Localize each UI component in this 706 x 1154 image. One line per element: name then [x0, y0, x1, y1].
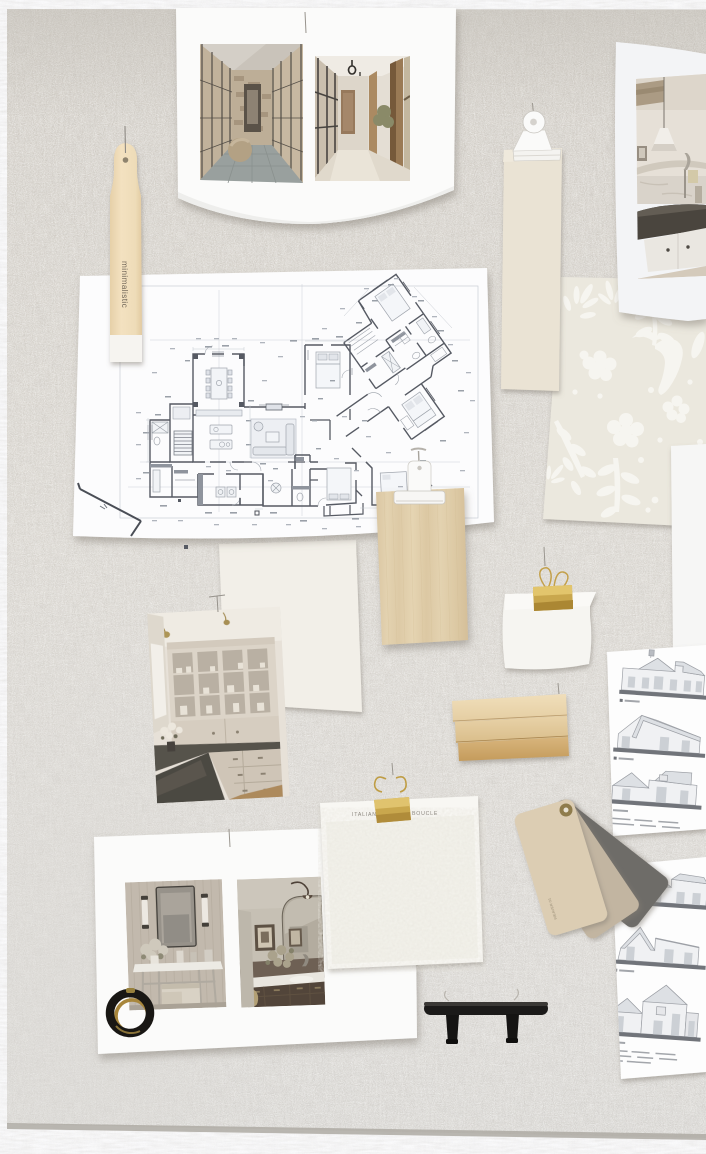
svg-text:minimalistic: minimalistic — [120, 261, 129, 308]
svg-text:ITALIAN: ITALIAN — [352, 812, 377, 818]
svg-text:BOUCLE: BOUCLE — [412, 811, 438, 817]
